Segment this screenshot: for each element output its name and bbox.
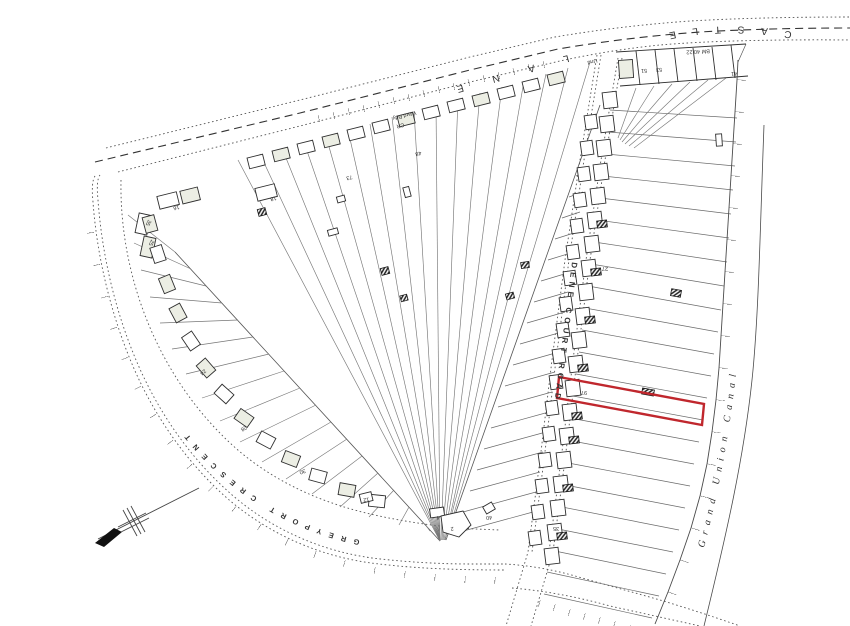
road-lane-south-edge [118, 40, 850, 172]
house-number: 41 [731, 70, 737, 76]
house-number: 73 [346, 173, 353, 180]
house-number: 4 [436, 514, 440, 520]
canal-west-bank [655, 60, 738, 624]
house-number: 28 [239, 424, 247, 432]
house-number: 12 [363, 495, 370, 502]
road-bottom-north-edge [505, 564, 740, 626]
plot-boundaries [128, 44, 746, 618]
house-number: 30 [298, 467, 306, 475]
house-number-labels: 16 48 18 73 35 25 24 28 30 12 4 2 40 51 … [144, 66, 738, 531]
benchmark-label: BM 40.22 [686, 47, 710, 54]
plot-diagonal-west [175, 252, 440, 541]
crescent-houses [142, 215, 385, 508]
white-sheds [327, 134, 722, 236]
street-label-castle: CASTLE [652, 23, 793, 44]
north-arrow-head-icon [95, 528, 122, 547]
house-number: 27 [602, 265, 608, 271]
north-arrow [95, 488, 199, 547]
house-number: 97 [581, 389, 587, 395]
road-crescent-outer-edge [97, 175, 505, 564]
top-right-house-row [616, 44, 748, 86]
house-number: 40 [486, 514, 493, 521]
und-boundary-label: Und [587, 57, 598, 65]
house-number: 48 [415, 149, 422, 156]
bottom-road-survey-ticks [525, 596, 645, 626]
site-plan-page: LANE CASTLE DENE COURT ROAD GREYPORT CRE… [0, 0, 850, 626]
street-label-grand-union-canal: Grand Union Canal [696, 368, 739, 549]
canal [655, 60, 764, 626]
house-number: 53 [656, 66, 662, 72]
house-number: 35 [553, 525, 559, 531]
hatched-sheds [257, 208, 681, 540]
ward-boundary-dashed-line [95, 28, 850, 162]
house-2-pentagon [441, 511, 471, 537]
cr-boundary-label: CR [396, 121, 405, 129]
house-number: 2 [450, 525, 454, 531]
site-plan-map: LANE CASTLE DENE COURT ROAD GREYPORT CRE… [0, 0, 850, 626]
buildings [135, 44, 748, 565]
house-number: 51 [641, 67, 647, 73]
north-arrow-cross-hatch [118, 506, 149, 536]
north-fan-plot-lines [238, 62, 590, 541]
